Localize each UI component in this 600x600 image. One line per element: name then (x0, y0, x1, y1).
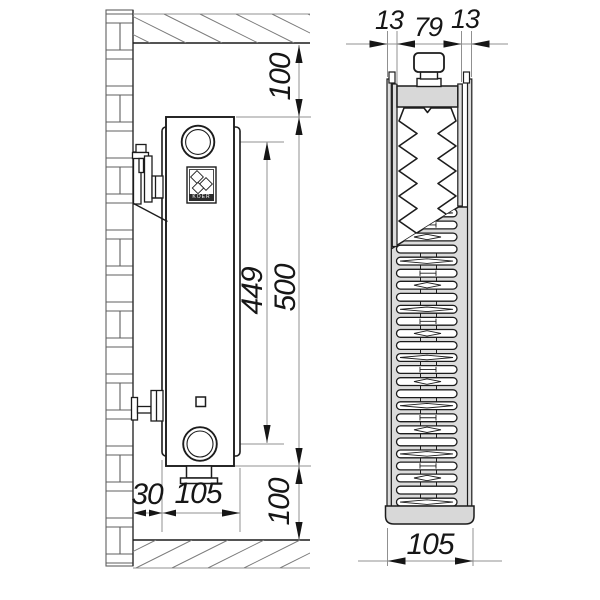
bottom-cap (386, 506, 475, 524)
dim-label-bottom-clearance: 100 (263, 457, 297, 547)
front-panel-plate (468, 79, 472, 517)
brand-logo-text: KOER (189, 194, 214, 201)
top-header (397, 86, 458, 107)
dim-label-connection-spacing: 449 (236, 246, 270, 336)
dim-label-top-clearance: 100 (264, 32, 298, 122)
dim-label-rear-panel: 13 (420, 2, 510, 36)
drain-square (196, 397, 206, 407)
dim-label-depth-side: 105 (153, 477, 243, 511)
radiator-section-view (386, 53, 475, 524)
floor-hatch (100, 540, 372, 568)
dim-label-height: 500 (269, 243, 303, 333)
rear-panel-plate (387, 79, 391, 517)
radiator-technical-drawing: 100 500 449 100 30 105 13 79 13 105 KOER (0, 0, 600, 600)
mounting-bracket-bottom (132, 391, 164, 422)
radiator-side-view (162, 117, 240, 484)
grille-slots (397, 209, 458, 506)
air-vent-valve (414, 53, 444, 87)
dim-label-depth-section: 105 (385, 528, 475, 562)
